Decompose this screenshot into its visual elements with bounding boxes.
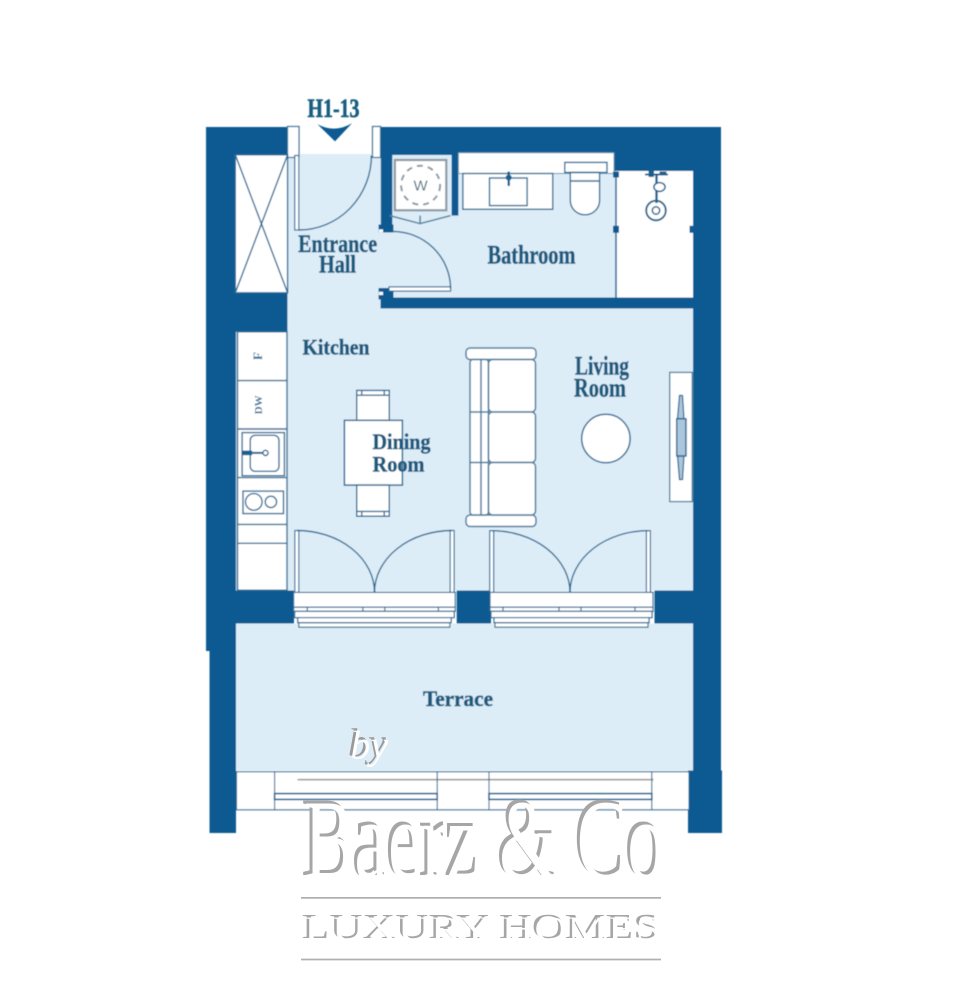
svg-text:Hall: Hall <box>319 252 356 279</box>
svg-text:LUXURY HOMES: LUXURY HOMES <box>304 910 661 949</box>
svg-text:Baerz & Co: Baerz & Co <box>304 778 665 903</box>
svg-text:W: W <box>414 178 429 195</box>
svg-text:Room: Room <box>373 452 425 477</box>
svg-text:Room: Room <box>574 374 626 403</box>
svg-text:Bathroom: Bathroom <box>488 241 576 270</box>
svg-text:by: by <box>350 722 388 767</box>
svg-text:DW: DW <box>253 395 265 414</box>
svg-text:Kitchen: Kitchen <box>303 335 370 360</box>
svg-text:F: F <box>250 352 265 360</box>
svg-text:H1-13: H1-13 <box>308 94 360 123</box>
svg-text:Dining: Dining <box>373 429 431 454</box>
svg-text:Terrace: Terrace <box>423 686 493 711</box>
